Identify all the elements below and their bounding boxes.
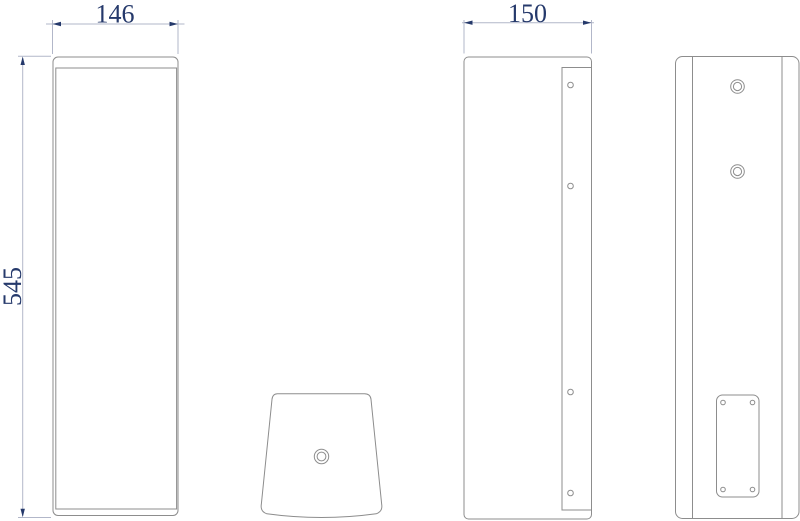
side-screw-hole-4	[568, 490, 574, 496]
dimension-height-label: 545	[0, 267, 27, 306]
depth-arrow-left	[464, 21, 473, 25]
width-arrow-right	[170, 22, 179, 26]
depth-arrow-right	[583, 21, 592, 25]
side-outline	[464, 57, 592, 519]
drawing-sheet: 146 545 150	[0, 0, 800, 521]
rear-mount-hole-top-inner	[733, 82, 741, 90]
dimension-width-label: 146	[96, 0, 135, 29]
side-view	[464, 57, 592, 519]
dimension-lines	[18, 20, 594, 518]
top-pole-mount-hole-inner	[317, 452, 326, 461]
drawing-canvas: 146 545 150	[0, 0, 800, 521]
rear-panel-screw-tl	[721, 400, 726, 405]
side-screw-hole-2	[568, 183, 574, 189]
rear-view	[676, 57, 800, 519]
rear-connector-panel	[717, 395, 760, 497]
dimension-depth-label: 150	[508, 0, 547, 28]
side-screw-hole-3	[568, 389, 574, 395]
object-views	[53, 57, 799, 520]
rear-panel-screw-tr	[750, 400, 755, 405]
dimension-arrows	[21, 21, 592, 518]
side-rear-panel-edge	[562, 68, 592, 511]
rear-mount-hole-bottom-inner	[733, 167, 741, 175]
rear-outline	[676, 57, 800, 519]
side-screw-hole-1	[568, 82, 574, 88]
height-arrow-top	[21, 57, 25, 66]
dimension-texts: 146 545 150	[0, 0, 547, 306]
rear-panel-screw-br	[750, 487, 755, 492]
height-arrow-bottom	[21, 509, 25, 518]
rear-panel-screw-bl	[721, 487, 726, 492]
rear-mount-hole-top-outer	[731, 80, 745, 94]
rear-mount-hole-bottom-outer	[731, 165, 745, 179]
top-view	[261, 394, 382, 518]
top-pole-mount-hole-outer	[314, 449, 328, 463]
top-outline	[261, 394, 382, 518]
front-view	[53, 57, 178, 516]
front-outline	[53, 57, 178, 516]
width-arrow-left	[53, 22, 62, 26]
front-grille-frame	[56, 68, 177, 509]
